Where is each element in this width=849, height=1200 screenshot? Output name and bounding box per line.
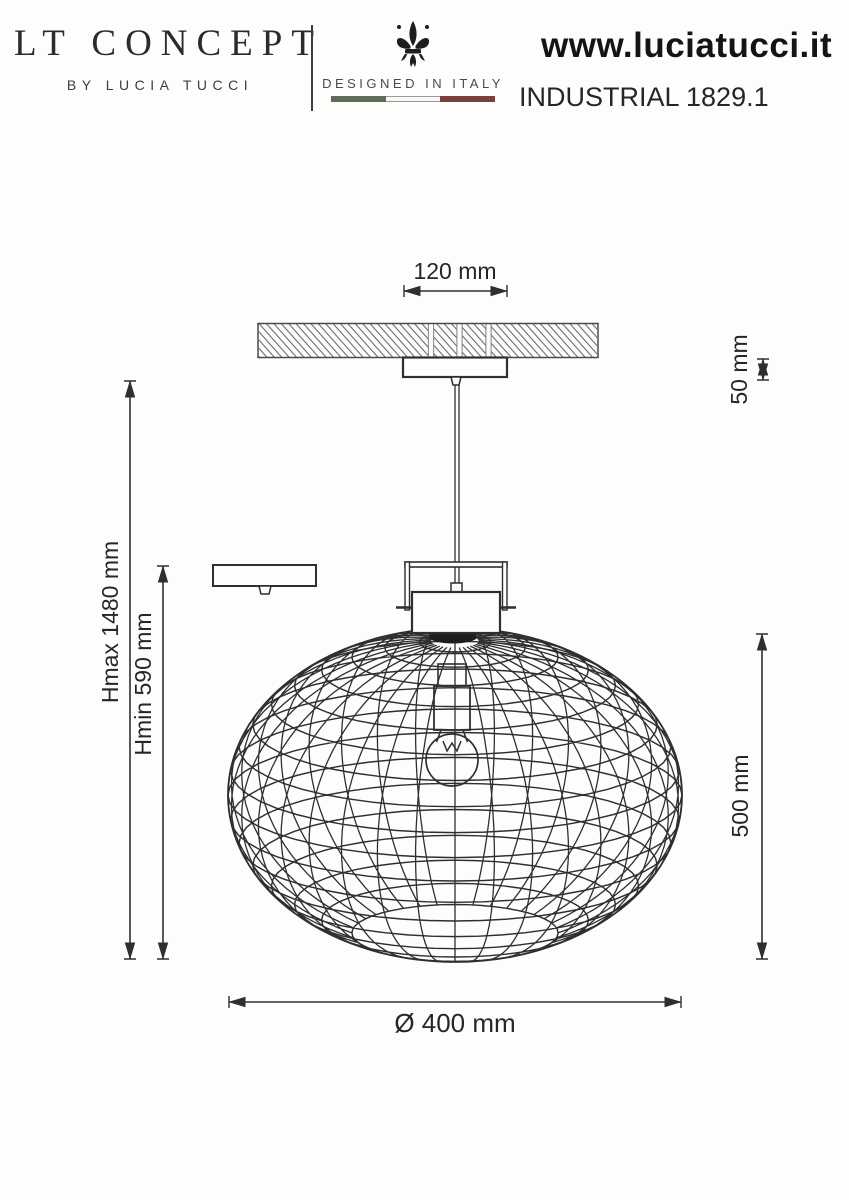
suspension-rod (451, 385, 462, 592)
spec-sheet-page: LT CONCEPT BY LUCIA TUCCI DESIGNED IN IT… (0, 0, 849, 1200)
mounting-slot (428, 324, 433, 357)
lamp-socket (434, 686, 470, 730)
dim-canopy-height: 50 mm (726, 334, 769, 404)
dim-shade-diameter: Ø 400 mm (229, 996, 681, 1038)
lamp-housing (412, 592, 500, 633)
bulb-and-socket (426, 664, 478, 786)
dim-height-min: Hmin 590 mm (130, 566, 169, 959)
dim-label-shade-diameter: Ø 400 mm (394, 1008, 515, 1038)
ceiling-canopy (403, 358, 507, 386)
mounting-slot (486, 324, 491, 357)
dim-label-canopy-height: 50 mm (726, 334, 752, 404)
ceiling-section (228, 322, 632, 360)
dim-label-height-min: Hmin 590 mm (130, 612, 156, 755)
dim-label-height-max: Hmax 1480 mm (97, 541, 123, 703)
dim-label-shade-height: 500 mm (727, 754, 753, 837)
technical-drawing: 120 mm 50 mm Hmax 1480 mm Hmin 590 mm 50… (0, 0, 849, 1200)
dim-label-canopy-width: 120 mm (413, 258, 496, 284)
shade-holder-frame (396, 562, 516, 633)
shade-mesh (228, 628, 682, 962)
dim-canopy-width: 120 mm (404, 258, 507, 297)
mounting-slot (457, 324, 462, 357)
dim-shade-height: 500 mm (727, 634, 768, 959)
canopy-side-view (213, 565, 316, 594)
